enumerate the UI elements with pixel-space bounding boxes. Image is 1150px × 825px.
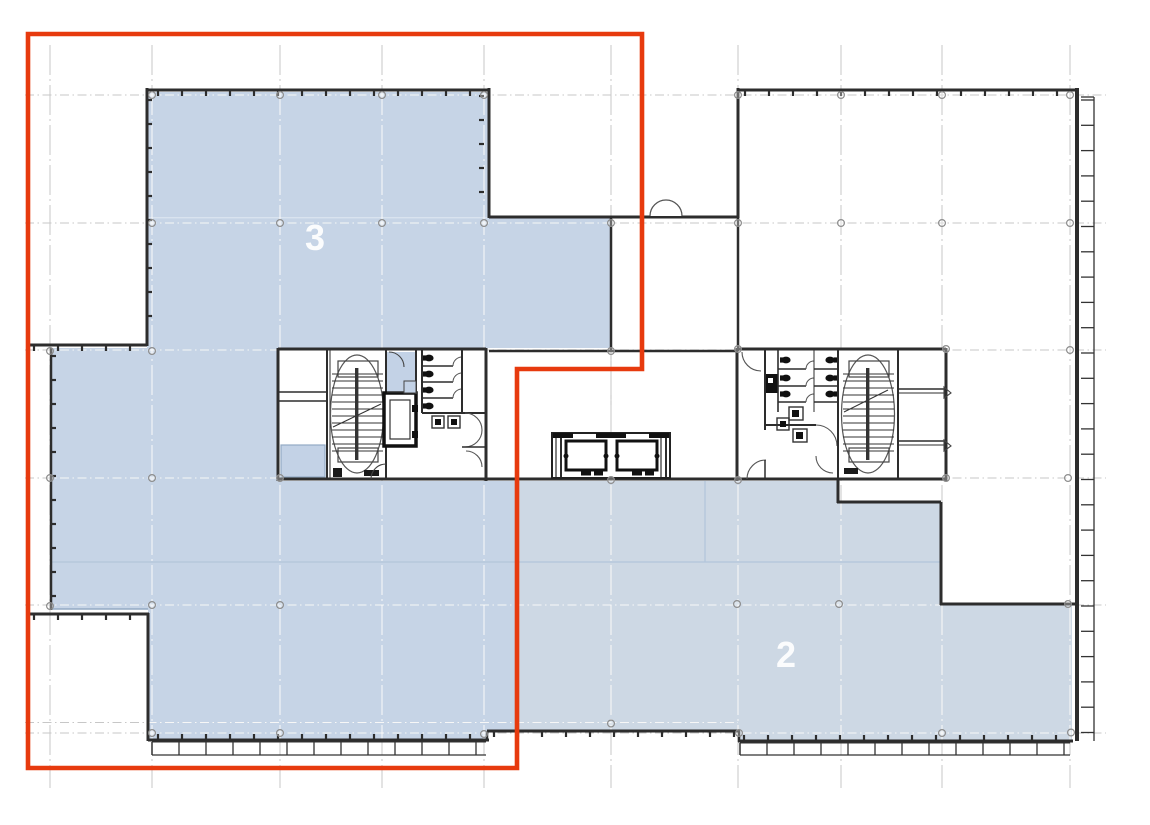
svg-text:2: 2 [776, 634, 796, 675]
svg-text:3: 3 [305, 217, 325, 258]
